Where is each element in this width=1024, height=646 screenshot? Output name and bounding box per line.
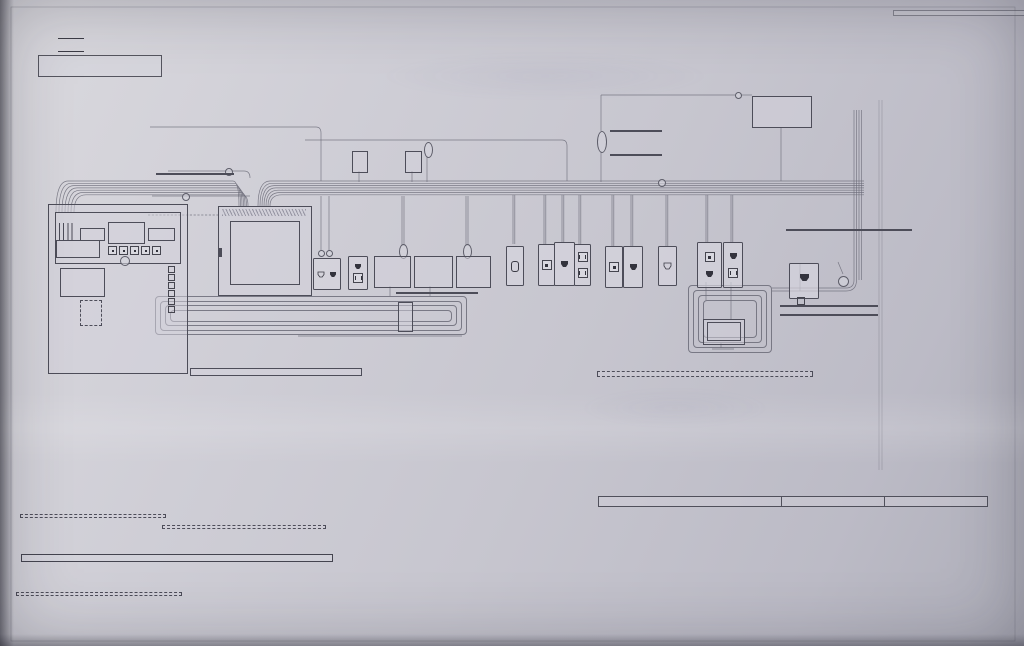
lan-jack-icon (799, 273, 810, 282)
outlet-icon (728, 268, 738, 278)
conduit-ellipse (424, 142, 433, 158)
tv-terminal-icon (609, 262, 619, 272)
wall-plate-guest-lan (623, 246, 643, 288)
line-symbol (58, 38, 84, 39)
supplied-connectors (108, 246, 161, 255)
lan-module-label (786, 229, 912, 231)
lan-jack-icon (629, 263, 638, 271)
wall-plate-living-lan (554, 242, 575, 286)
conduit-end (735, 92, 742, 99)
dist-board-2 (414, 256, 453, 288)
tel-jack-icon (317, 271, 325, 278)
conduit-end (658, 179, 666, 187)
earth-outlet-icon (838, 276, 849, 287)
info-panel-door (230, 221, 300, 285)
spare-lines-icon (59, 223, 73, 241)
wall-plate-living-tv (538, 244, 555, 286)
dist-board-1 (374, 256, 411, 288)
panel-hinge (219, 248, 222, 257)
alsok-main-device-label (156, 173, 234, 175)
outlet-icon (578, 268, 588, 278)
main-notice-box (21, 554, 333, 562)
construction-scope-table (598, 496, 988, 507)
line-symbol (58, 51, 84, 52)
lan-jack-icon (729, 252, 738, 260)
wall-plate-master-1 (697, 242, 722, 288)
north-camera-label (610, 130, 662, 132)
amplifier-box (108, 222, 145, 244)
table-header-row (598, 496, 988, 507)
jb-water-box (405, 151, 422, 173)
wall-plate-remocon (506, 246, 524, 286)
tv-terminal-icon (542, 260, 552, 270)
tv-terminal-icon (705, 252, 715, 262)
conduit-end (326, 250, 333, 257)
west-camera-label (610, 154, 662, 156)
wall-plate-master-2 (723, 242, 743, 288)
header-gas (781, 496, 884, 507)
photo-of-wiring-diagram (0, 0, 1024, 646)
aiseg-unit (398, 302, 413, 332)
header-jisso (598, 496, 781, 507)
monitor-screen (707, 322, 741, 341)
outlet-icon (353, 273, 363, 283)
remote-icon (511, 261, 519, 272)
conduit-ellipse (597, 131, 607, 153)
layout-check-note (396, 292, 478, 294)
remocon-router-note (162, 525, 326, 529)
waterproof-lan-label-2 (780, 314, 878, 316)
wall-plate-den (658, 246, 677, 286)
header-denki (884, 496, 988, 507)
junction-square (797, 297, 805, 305)
spec-row-cd (54, 37, 88, 39)
wall-plate-guest-tv (605, 246, 623, 288)
lan-jack-icon (354, 263, 362, 270)
wall-plate-east-onu (313, 258, 341, 290)
outlet-icon (578, 252, 588, 262)
tribrid-powercon-box (752, 96, 812, 128)
distributor-box (148, 228, 175, 241)
wall-plate-south (348, 256, 368, 290)
phone-line-note (16, 592, 182, 596)
waterproof-lan-label-1 (780, 305, 878, 307)
switching-hub-box (60, 268, 105, 297)
earth-outlet-icon (120, 256, 130, 266)
tel-terminal-box (56, 240, 100, 258)
router-box (80, 300, 102, 326)
conduit-end (182, 193, 190, 201)
lan-jack-icon (560, 260, 569, 268)
wall-plate-enefarm (789, 263, 819, 299)
hems-setup-note (20, 514, 166, 518)
jb-gas-box (352, 151, 368, 173)
wall-plate-living-outlet (574, 244, 591, 286)
conduit-end (318, 250, 325, 257)
lan-jack-icon (705, 270, 714, 278)
home-server-note (597, 371, 813, 377)
lan-jack-icon (329, 271, 337, 278)
patch-ports (168, 266, 175, 313)
spec-row-coax (54, 50, 88, 52)
panel-caution-note (190, 368, 362, 376)
page-title (38, 55, 162, 77)
tel-jack-icon (663, 262, 672, 270)
legend (893, 10, 1024, 16)
ct-sensor-box (456, 256, 491, 288)
